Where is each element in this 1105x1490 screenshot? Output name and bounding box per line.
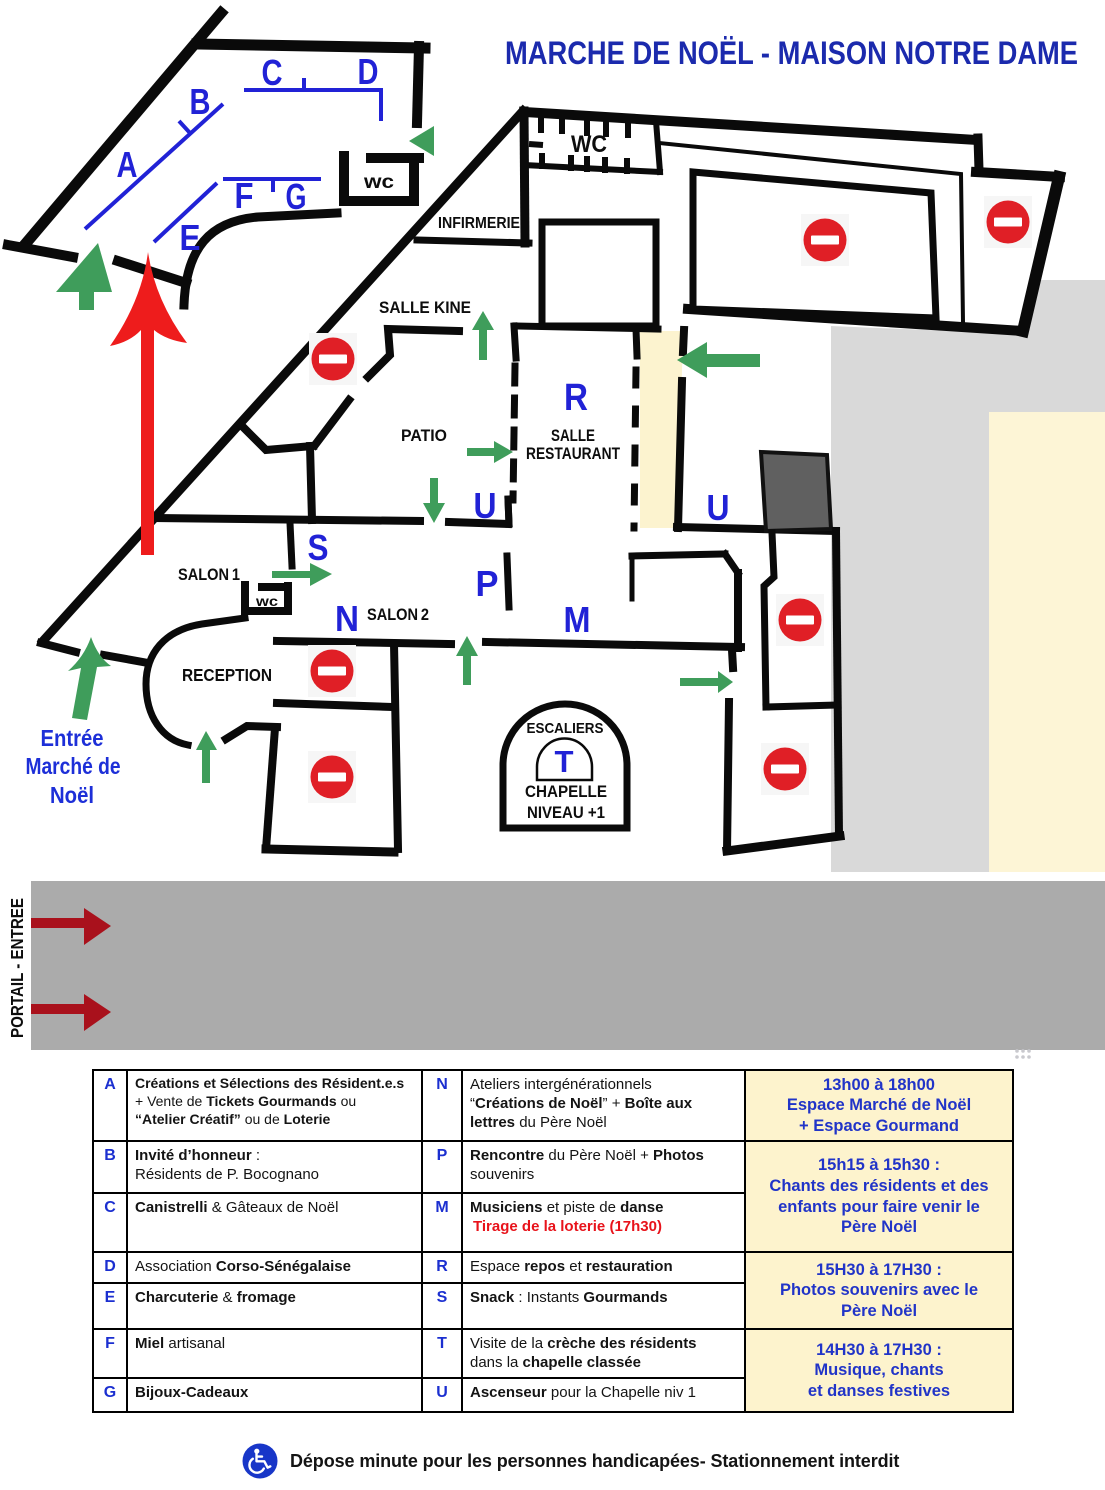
svg-text:Marché de: Marché de bbox=[26, 753, 121, 779]
svg-text:N: N bbox=[335, 598, 359, 639]
svg-text:T: T bbox=[555, 744, 574, 779]
svg-text:MARCHE DE NOËL - MAISON NOTRE: MARCHE DE NOËL - MAISON NOTRE DAME bbox=[505, 35, 1078, 71]
svg-text:M: M bbox=[564, 599, 591, 640]
svg-text:A: A bbox=[117, 144, 138, 185]
svg-text:WC: WC bbox=[571, 131, 607, 158]
svg-text:wc: wc bbox=[255, 593, 278, 609]
svg-text:R: R bbox=[564, 377, 588, 419]
svg-text:SALLE: SALLE bbox=[551, 427, 595, 445]
svg-text:B: B bbox=[190, 81, 211, 122]
svg-text:NIVEAU +1: NIVEAU +1 bbox=[527, 803, 605, 822]
svg-text:RECEPTION: RECEPTION bbox=[182, 665, 272, 685]
svg-text:PATIO: PATIO bbox=[401, 427, 447, 445]
svg-text:SALON 1: SALON 1 bbox=[178, 565, 240, 584]
svg-text:SALLE KINE: SALLE KINE bbox=[379, 298, 471, 317]
svg-text:CHAPELLE: CHAPELLE bbox=[525, 782, 607, 801]
svg-text:wc: wc bbox=[363, 172, 395, 193]
svg-text:P: P bbox=[476, 563, 499, 604]
svg-text:Noël: Noël bbox=[50, 782, 94, 808]
svg-text:U: U bbox=[474, 485, 497, 526]
svg-text:F: F bbox=[235, 175, 254, 216]
svg-text:SALON 2: SALON 2 bbox=[367, 605, 429, 624]
svg-text:G: G bbox=[286, 176, 307, 217]
svg-text:ESCALIERS: ESCALIERS bbox=[527, 720, 604, 737]
svg-text:E: E bbox=[180, 217, 201, 258]
svg-text:D: D bbox=[358, 51, 379, 92]
svg-text:U: U bbox=[707, 487, 730, 528]
svg-text:S: S bbox=[308, 527, 329, 568]
svg-text:C: C bbox=[262, 52, 283, 93]
svg-text:INFIRMERIE: INFIRMERIE bbox=[438, 215, 520, 232]
svg-text:RESTAURANT: RESTAURANT bbox=[526, 445, 620, 463]
svg-text:Entrée: Entrée bbox=[41, 725, 104, 751]
svg-text:PORTAIL - ENTREE: PORTAIL - ENTREE bbox=[7, 898, 27, 1038]
